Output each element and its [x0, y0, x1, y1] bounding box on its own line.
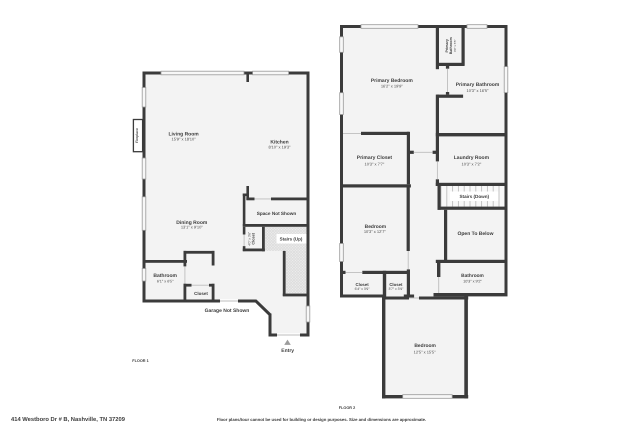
- svg-text:10'3" x 16'5": 10'3" x 16'5": [467, 88, 490, 93]
- svg-text:Stairs (Up): Stairs (Up): [280, 237, 303, 242]
- svg-text:Closet: Closet: [252, 232, 256, 244]
- svg-text:Open To Below: Open To Below: [457, 231, 493, 237]
- svg-text:13'1" x 9'10": 13'1" x 9'10": [181, 225, 204, 230]
- svg-text:Floor plans/tour cannot be use: Floor plans/tour cannot be used for buil…: [217, 417, 426, 422]
- svg-text:3'7" x 3'9": 3'7" x 3'9": [388, 287, 404, 291]
- svg-text:3'9" x 5'5": 3'9" x 5'5": [453, 39, 457, 52]
- svg-text:16'2" x 19'9": 16'2" x 19'9": [381, 84, 404, 89]
- svg-text:6'4" x 3'9": 6'4" x 3'9": [355, 287, 371, 291]
- svg-text:10'3" x 7'2": 10'3" x 7'2": [462, 162, 482, 167]
- svg-text:Entry: Entry: [281, 348, 294, 354]
- svg-text:Closet: Closet: [194, 291, 208, 296]
- svg-text:4'0" x 3'6": 4'0" x 3'6": [248, 232, 252, 246]
- svg-text:10'3" x 9'2": 10'3" x 9'2": [463, 280, 482, 284]
- svg-text:Bathroom: Bathroom: [153, 273, 177, 279]
- svg-text:10'3" x 12'7": 10'3" x 12'7": [364, 229, 387, 234]
- svg-text:6'1" x 6'5": 6'1" x 6'5": [157, 279, 174, 283]
- svg-text:Laundry Room: Laundry Room: [454, 155, 490, 161]
- svg-text:Fireplace: Fireplace: [135, 128, 139, 143]
- svg-text:8'10" x 19'3": 8'10" x 19'3": [269, 145, 292, 150]
- svg-text:Space Not Shown: Space Not Shown: [257, 211, 297, 216]
- svg-text:Bathroom: Bathroom: [461, 273, 484, 279]
- svg-text:Bedroom: Bedroom: [414, 343, 436, 349]
- svg-text:414 Westboro Dr # B, Nashville: 414 Westboro Dr # B, Nashville, TN 37209: [11, 416, 126, 423]
- svg-text:Stairs (Down): Stairs (Down): [459, 194, 489, 199]
- svg-text:10'3" x 7'7": 10'3" x 7'7": [365, 162, 385, 167]
- svg-text:Primary Closet: Primary Closet: [357, 155, 393, 161]
- svg-text:Garage Not Shown: Garage Not Shown: [205, 308, 250, 314]
- svg-text:15'9" x 18'10": 15'9" x 18'10": [172, 137, 197, 142]
- svg-text:FLOOR 2: FLOOR 2: [339, 406, 355, 410]
- svg-text:FLOOR 1: FLOOR 1: [132, 359, 148, 363]
- svg-text:12'5" x 15'5": 12'5" x 15'5": [414, 350, 437, 355]
